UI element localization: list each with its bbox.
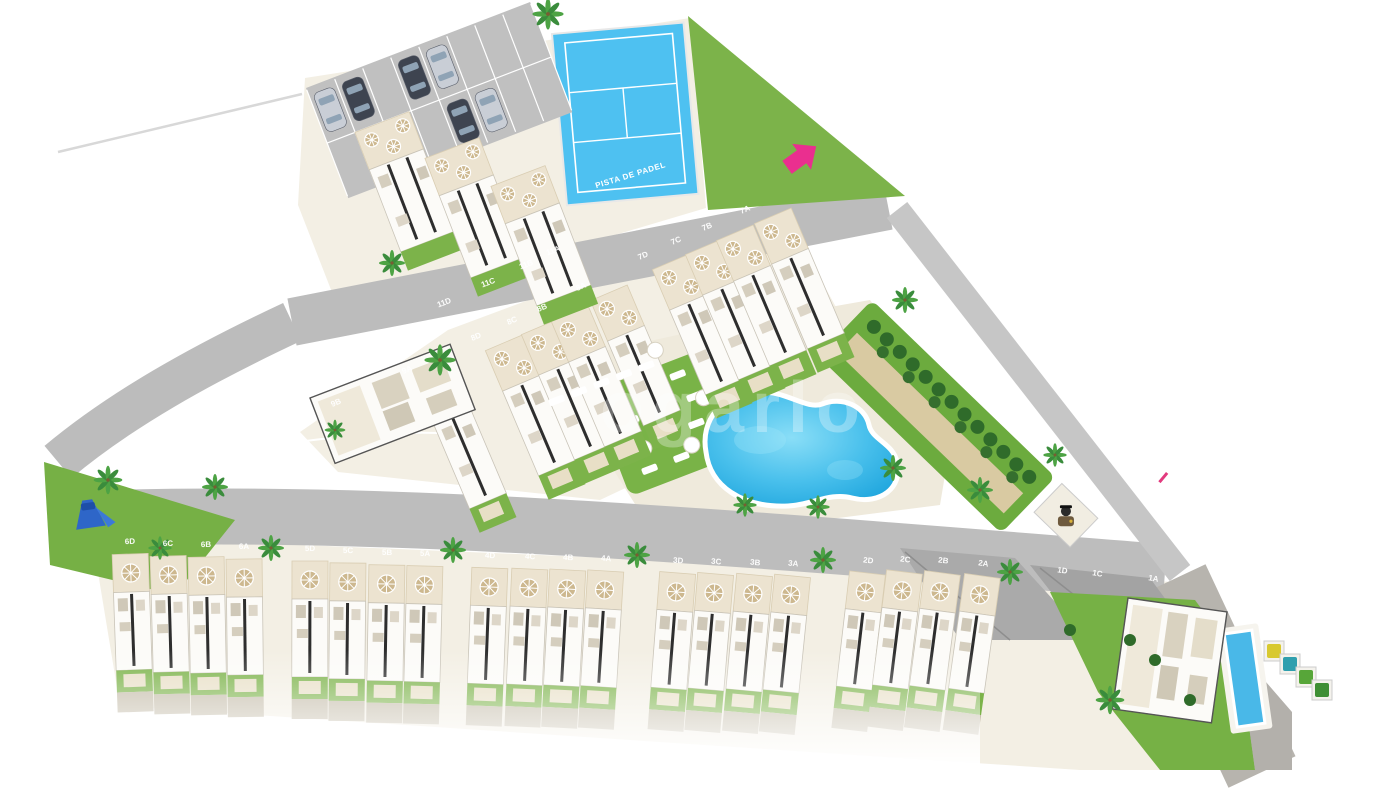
palm-tree-icon bbox=[810, 547, 836, 573]
left-road bbox=[58, 322, 292, 462]
unit-label-4A: 4A bbox=[601, 554, 612, 564]
unit-label-1D: 1D bbox=[1057, 565, 1069, 576]
unit-label-1A: 1A bbox=[1148, 573, 1160, 584]
unit-label-6A: 6A bbox=[239, 542, 250, 551]
recycling-bin-icon bbox=[1283, 657, 1297, 671]
unit-label-5C: 5C bbox=[343, 546, 354, 555]
unit-label-2A: 2A bbox=[978, 558, 990, 568]
unit-label-2C: 2C bbox=[900, 554, 911, 564]
palm-tree-icon bbox=[94, 466, 123, 495]
palm-tree-icon bbox=[967, 477, 993, 503]
boundary-line bbox=[58, 94, 302, 152]
unit-label-5D: 5D bbox=[305, 544, 315, 553]
unit-label-2D: 2D bbox=[863, 555, 874, 565]
unit-label-3A: 3A bbox=[788, 559, 799, 569]
palm-tree-icon bbox=[440, 537, 466, 563]
site-plan-image: PISTA DE PADEL bbox=[0, 0, 1400, 797]
palm-tree-icon bbox=[880, 455, 906, 481]
palm-tree-icon bbox=[258, 535, 284, 561]
palm-tree-icon bbox=[997, 559, 1023, 585]
unit-label-6B: 6B bbox=[201, 540, 212, 549]
palm-tree-icon bbox=[1096, 686, 1125, 715]
masterplan-svg: PISTA DE PADEL bbox=[0, 0, 1400, 797]
recycling-bin-icon bbox=[1315, 683, 1329, 697]
palm-tree-icon bbox=[806, 495, 829, 518]
unit-label-5B: 5B bbox=[382, 548, 393, 557]
palm-tree-icon bbox=[379, 250, 405, 276]
garden-bush-icon bbox=[1184, 694, 1196, 706]
recycling-bin-icon bbox=[1299, 670, 1313, 684]
watermark: ogarlo bbox=[600, 368, 868, 448]
palm-tree-icon bbox=[733, 493, 756, 516]
unit-label-4B: 4B bbox=[563, 553, 574, 563]
unit-label-2B: 2B bbox=[938, 555, 950, 565]
recycling-bin-icon bbox=[1267, 644, 1281, 658]
gate-marker bbox=[1158, 472, 1168, 483]
padel-lawn bbox=[688, 16, 905, 210]
pool-highlight bbox=[827, 460, 863, 480]
unit-label-4C: 4C bbox=[525, 552, 536, 561]
palm-tree-icon bbox=[325, 420, 346, 441]
garden-bush-icon bbox=[1124, 634, 1136, 646]
palm-tree-icon bbox=[892, 287, 918, 313]
palm-tree-icon bbox=[1043, 443, 1066, 466]
unit-label-4D: 4D bbox=[485, 551, 496, 560]
unit-label-3D: 3D bbox=[673, 556, 684, 566]
bottom-fade bbox=[0, 650, 980, 797]
unit-label-3C: 3C bbox=[711, 557, 722, 567]
garden-bush-icon bbox=[1064, 624, 1076, 636]
unit-label-6C: 6C bbox=[163, 539, 174, 548]
palm-tree-icon bbox=[202, 474, 228, 500]
palm-tree-icon bbox=[424, 344, 455, 375]
padel-court: PISTA DE PADEL bbox=[552, 22, 698, 205]
garden-bush-icon bbox=[1149, 654, 1161, 666]
unit-label-3B: 3B bbox=[750, 558, 761, 568]
unit-label-1C: 1C bbox=[1092, 568, 1104, 579]
unit-label-6D: 6D bbox=[125, 537, 136, 546]
floorplan-building bbox=[1112, 598, 1227, 723]
recycling-bins bbox=[1264, 641, 1332, 700]
unit-label-5A: 5A bbox=[420, 549, 431, 558]
palm-tree-icon bbox=[624, 542, 650, 568]
